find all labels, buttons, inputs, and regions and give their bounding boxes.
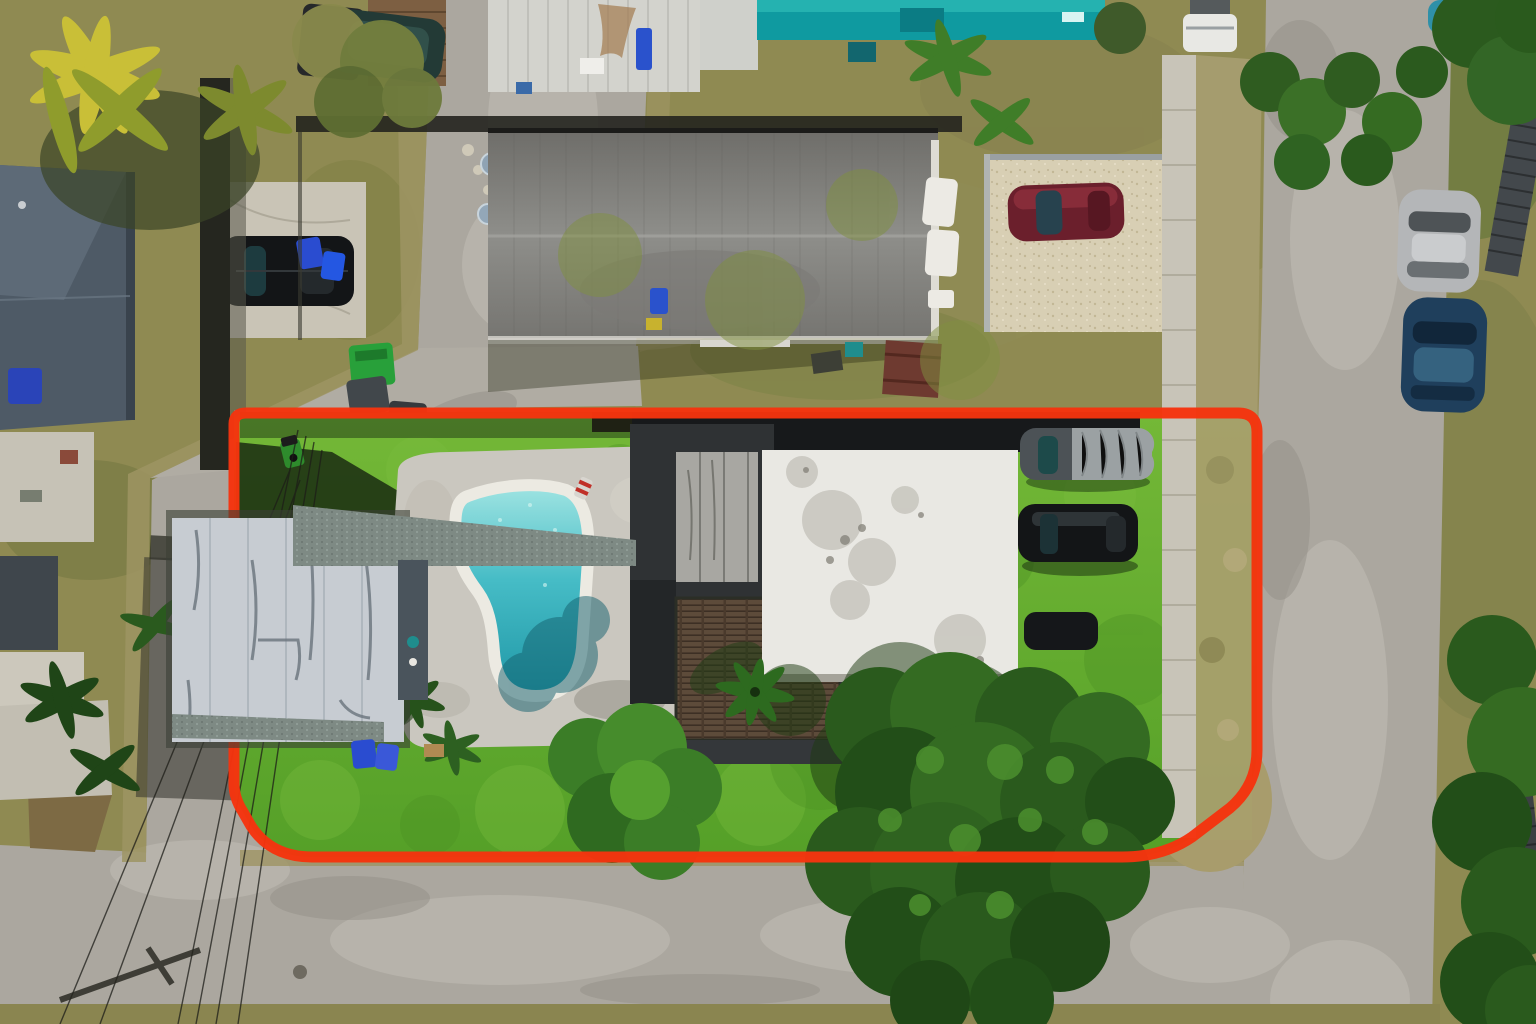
partially-hidden-car (1024, 612, 1098, 650)
gravel-pad (984, 154, 1162, 332)
silver-car (1396, 189, 1482, 294)
roof-east-section (398, 560, 428, 700)
west-roof-2 (0, 556, 58, 650)
manhole-cover (293, 965, 307, 979)
aerial-photo (0, 0, 1536, 1024)
in-lot-dirt-strip (1196, 412, 1252, 840)
maroon-car (1007, 182, 1125, 242)
west-patio (0, 432, 94, 542)
sidewalk-strip (1162, 55, 1196, 838)
aerial-photo-canvas (0, 0, 1536, 1024)
black-suv-on-lawn (1018, 504, 1138, 576)
covered-car (1020, 428, 1154, 492)
white-pickup-truck (1183, 0, 1237, 52)
dark-blue-car (1400, 297, 1488, 414)
